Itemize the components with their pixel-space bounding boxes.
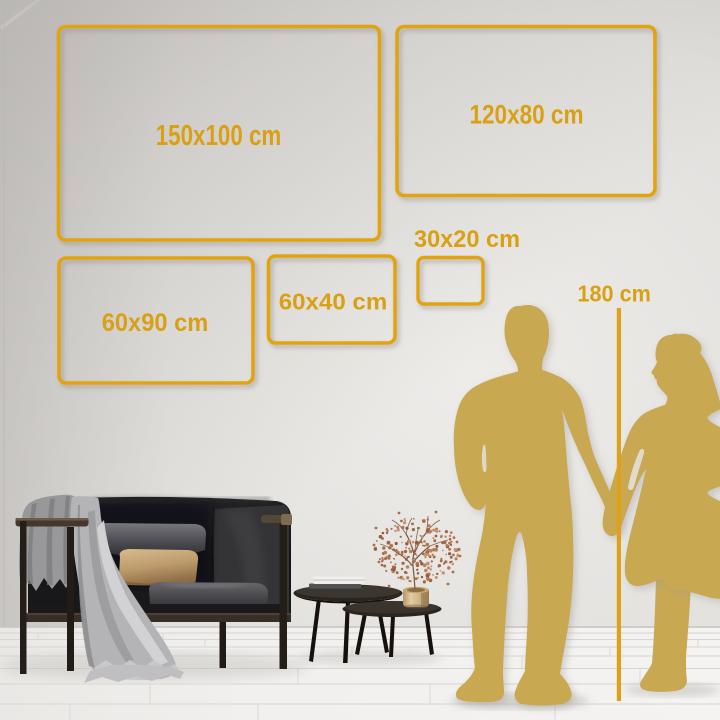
svg-text:60x40 cm: 60x40 cm xyxy=(279,289,388,315)
svg-text:30x20 cm: 30x20 cm xyxy=(414,226,520,253)
svg-text:60x90 cm: 60x90 cm xyxy=(102,309,209,337)
svg-text:120x80 cm: 120x80 cm xyxy=(470,99,584,129)
svg-text:180 cm: 180 cm xyxy=(577,280,651,306)
svg-text:150x100 cm: 150x100 cm xyxy=(156,120,282,152)
